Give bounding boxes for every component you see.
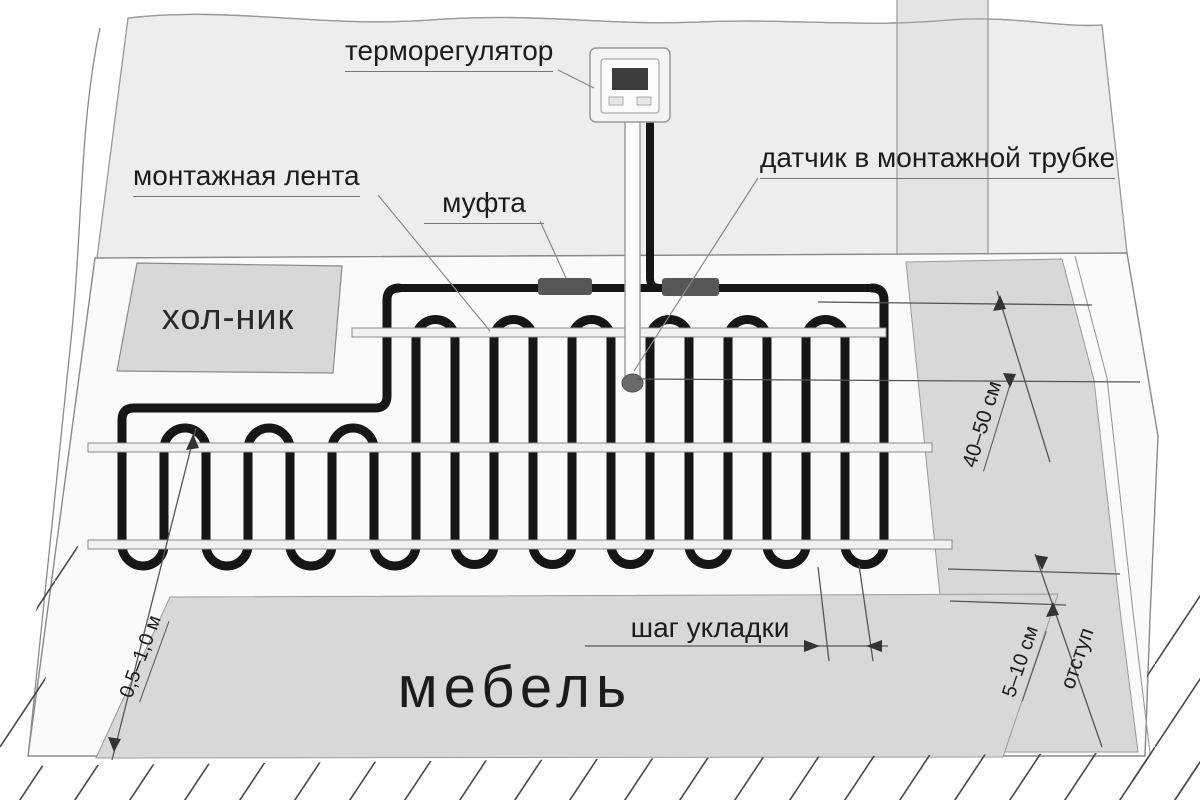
mounting-tape-2 (88, 443, 932, 452)
installation-diagram: терморегулятор монтажная лента муфта дат… (0, 0, 1200, 800)
sensor-tip (622, 374, 643, 392)
label-fridge: хол-ник (117, 263, 339, 371)
label-mounting-tape: монтажная лента (133, 162, 360, 197)
hatch-bottom (0, 752, 1198, 800)
sensor-tube (625, 114, 640, 382)
wall-duct-strip (897, 0, 988, 257)
thermostat-display (612, 68, 648, 90)
label-thermostat: терморегулятор (345, 37, 553, 72)
mounting-tape-3 (88, 540, 952, 549)
mounting-tape-1 (352, 328, 886, 337)
thermostat-button-right (637, 97, 651, 105)
label-furniture: мебель (320, 655, 710, 721)
label-coupling: муфта (424, 189, 544, 224)
thermostat-device (590, 48, 670, 122)
label-laying-step: шаг укладки (600, 614, 820, 642)
coupling-left (538, 278, 592, 295)
coupling-right (662, 278, 719, 296)
label-sensor: датчик в монтажной трубке (760, 144, 1115, 179)
thermostat-button-left (609, 97, 623, 105)
